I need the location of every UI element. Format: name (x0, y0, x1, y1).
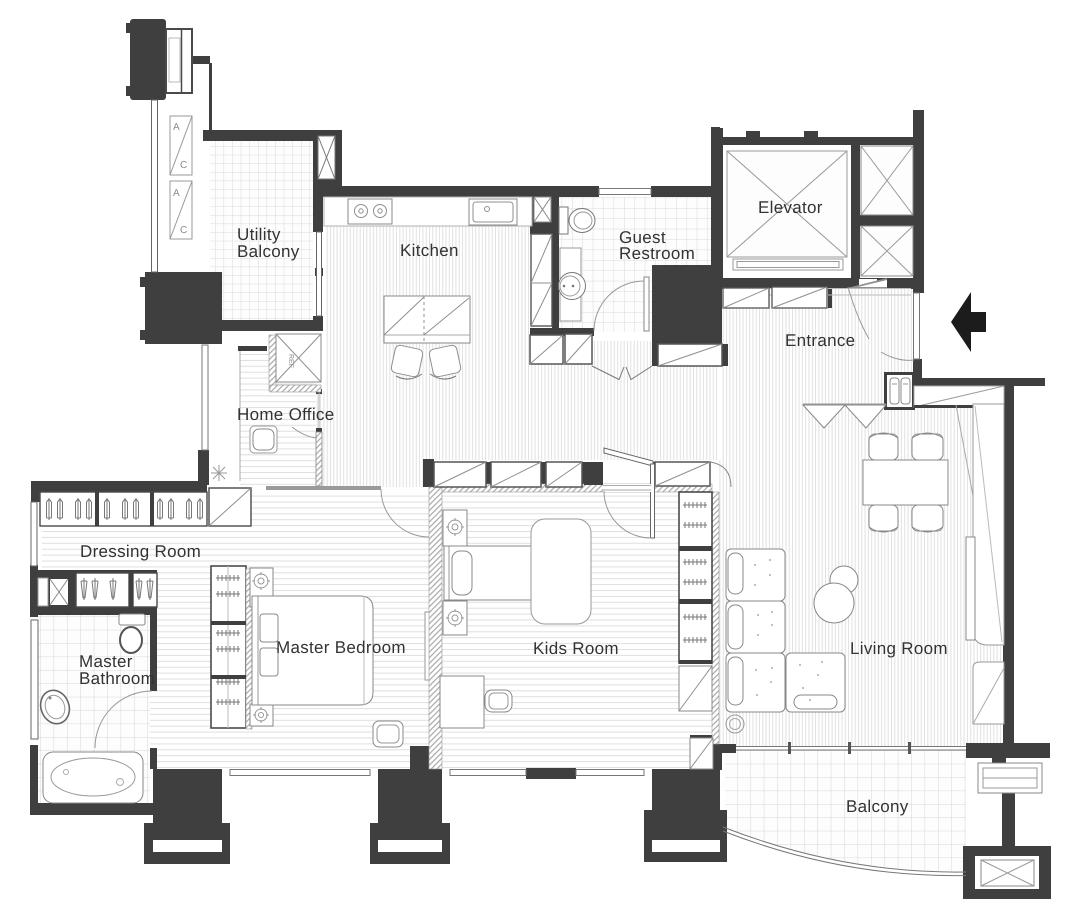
svg-text:Bathroom: Bathroom (79, 669, 155, 688)
svg-text:Restroom: Restroom (619, 244, 695, 263)
svg-text:Home Office: Home Office (237, 405, 334, 424)
svg-text:Master Bedroom: Master Bedroom (276, 638, 406, 657)
svg-text:Balcony: Balcony (846, 797, 909, 816)
svg-text:A: A (173, 188, 180, 199)
svg-text:C: C (180, 160, 187, 171)
svg-text:Entrance: Entrance (785, 331, 855, 350)
svg-text:REF: REF (287, 354, 294, 368)
svg-text:Dressing Room: Dressing Room (80, 542, 201, 561)
svg-text:Elevator: Elevator (758, 198, 823, 217)
svg-text:Living Room: Living Room (850, 639, 948, 658)
svg-text:C: C (180, 225, 187, 236)
svg-text:Kids Room: Kids Room (533, 639, 619, 658)
svg-text:A: A (173, 122, 180, 133)
svg-text:Balcony: Balcony (237, 242, 300, 261)
svg-text:Kitchen: Kitchen (400, 241, 459, 260)
